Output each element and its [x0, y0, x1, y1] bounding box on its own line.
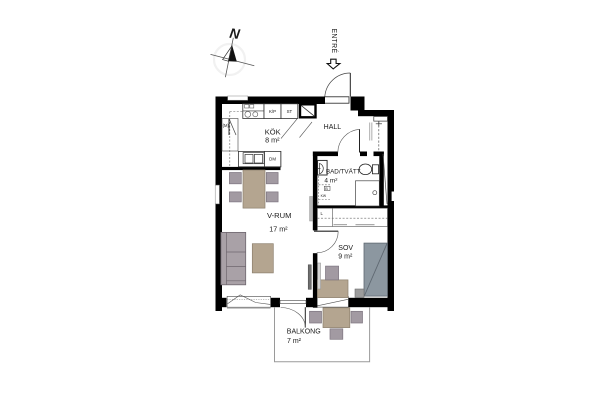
- svg-text:17 m²: 17 m²: [269, 225, 288, 234]
- svg-text:KW: KW: [321, 194, 327, 198]
- svg-text:4 m²: 4 m²: [324, 177, 338, 184]
- svg-text:B: B: [325, 187, 328, 191]
- svg-text:8 m²: 8 m²: [265, 136, 280, 145]
- svg-text:ENTRÉ: ENTRÉ: [330, 29, 339, 54]
- svg-text:(M): (M): [223, 123, 230, 128]
- svg-text:HALL: HALL: [324, 124, 342, 131]
- svg-text:DM: DM: [269, 157, 276, 162]
- svg-text:9 m²: 9 m²: [338, 253, 353, 260]
- svg-text:BALKONG: BALKONG: [287, 329, 321, 336]
- svg-text:BAD/TVÄTT: BAD/TVÄTT: [326, 167, 361, 175]
- svg-text:ST: ST: [287, 109, 293, 114]
- svg-text:K/P: K/P: [269, 109, 276, 114]
- svg-text:V-RUM: V-RUM: [267, 211, 291, 220]
- svg-text:7 m²: 7 m²: [287, 338, 302, 345]
- svg-text:SOV: SOV: [338, 245, 353, 252]
